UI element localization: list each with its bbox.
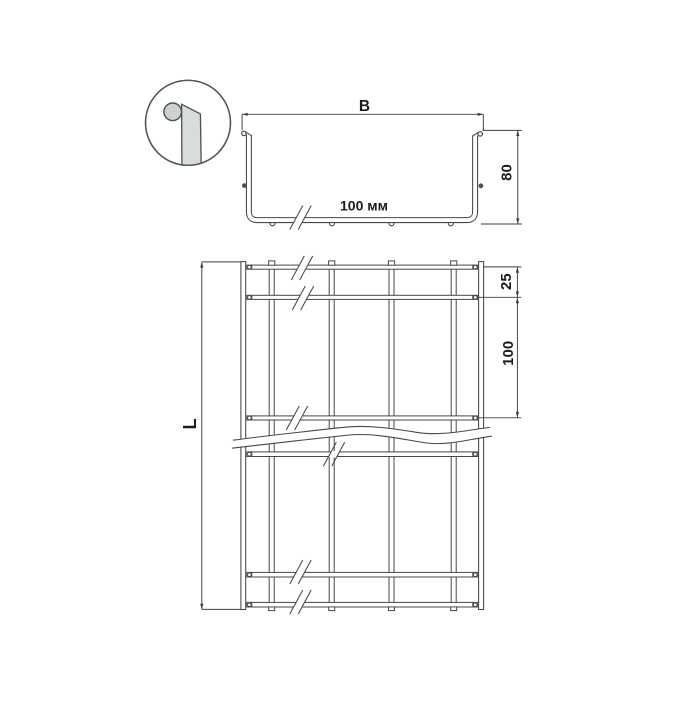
svg-text:100: 100	[500, 341, 517, 366]
svg-text:100 мм: 100 мм	[340, 197, 388, 213]
svg-text:25: 25	[498, 273, 515, 290]
svg-text:80: 80	[499, 164, 516, 181]
svg-text:B: B	[359, 98, 370, 115]
svg-text:L: L	[180, 419, 200, 430]
